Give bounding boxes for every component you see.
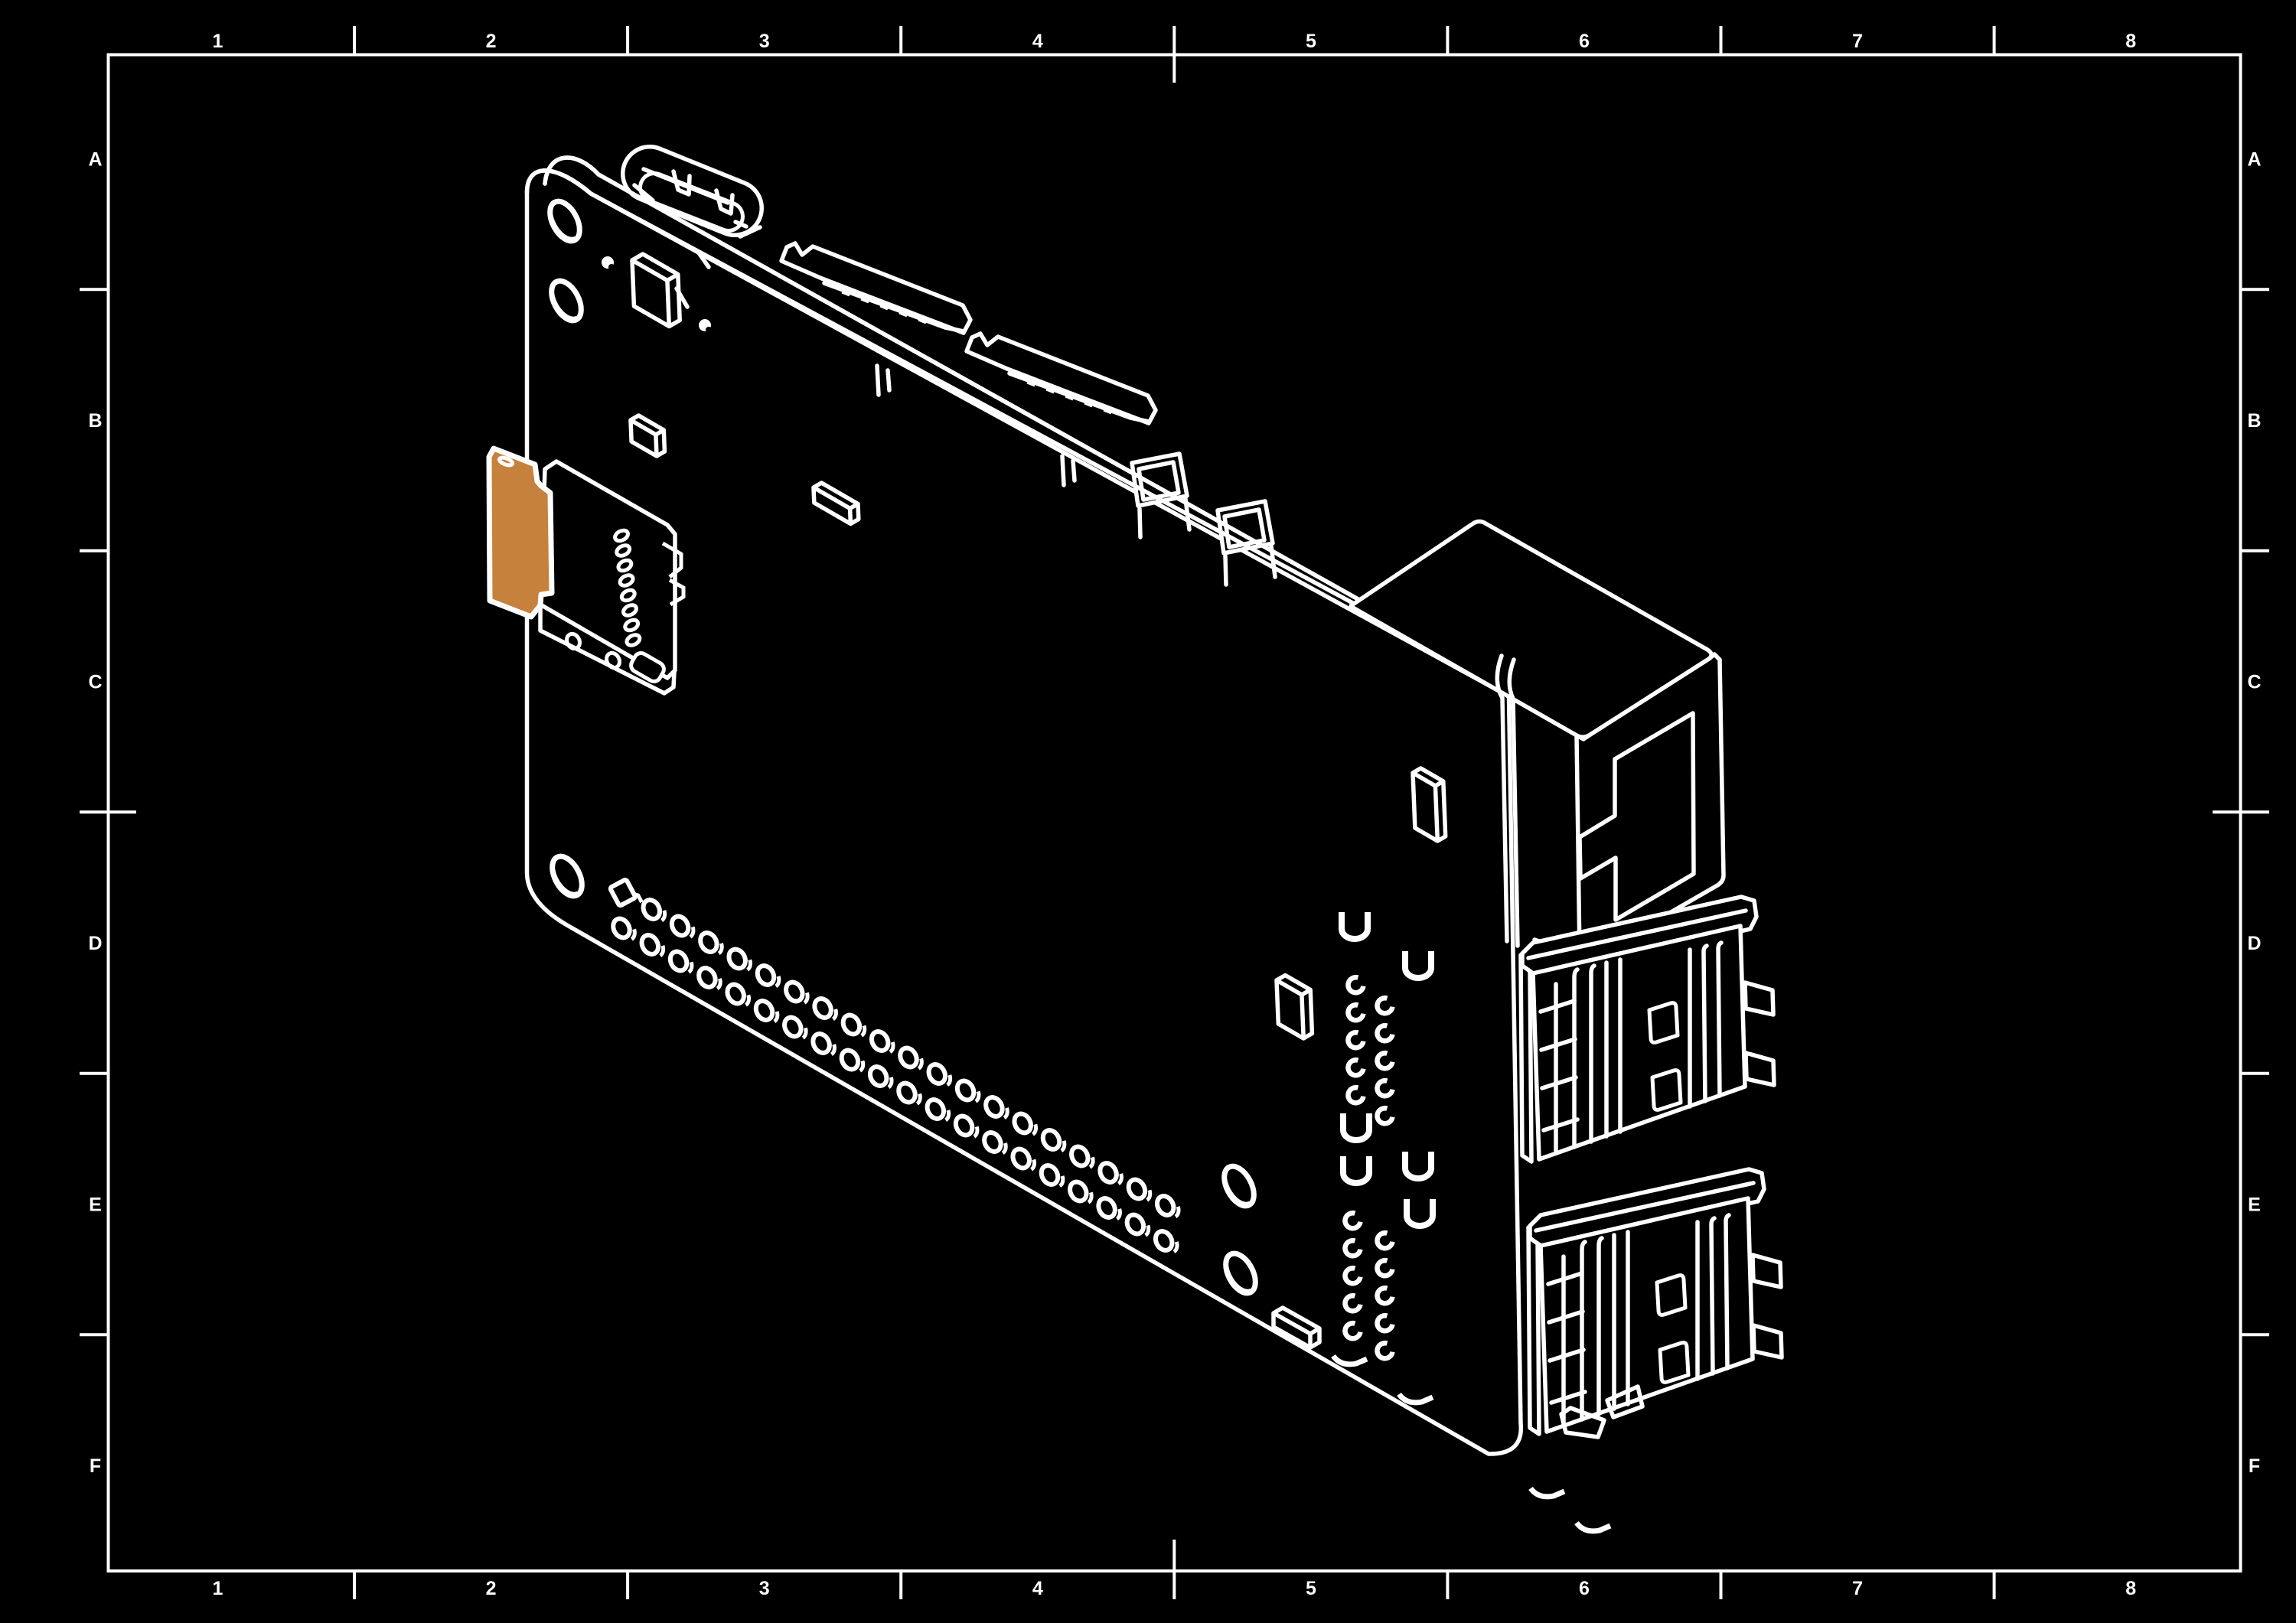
svg-text:E: E xyxy=(89,1194,102,1216)
svg-text:6: 6 xyxy=(1579,31,1590,52)
svg-text:D: D xyxy=(2247,933,2261,954)
svg-text:3: 3 xyxy=(759,1578,770,1599)
svg-text:7: 7 xyxy=(1852,1578,1863,1599)
svg-text:2: 2 xyxy=(486,31,497,52)
svg-text:1: 1 xyxy=(213,1578,223,1599)
svg-text:A: A xyxy=(2247,149,2261,171)
svg-text:A: A xyxy=(88,149,102,171)
svg-text:3: 3 xyxy=(759,31,770,52)
svg-text:4: 4 xyxy=(1032,31,1043,52)
svg-text:7: 7 xyxy=(1852,31,1863,52)
svg-text:5: 5 xyxy=(1306,1578,1316,1599)
svg-text:E: E xyxy=(2248,1194,2261,1216)
svg-text:4: 4 xyxy=(1032,1578,1043,1599)
svg-text:B: B xyxy=(2247,410,2261,432)
svg-text:6: 6 xyxy=(1579,1578,1590,1599)
svg-text:2: 2 xyxy=(486,1578,497,1599)
svg-text:8: 8 xyxy=(2125,1578,2136,1599)
svg-text:C: C xyxy=(2247,672,2261,693)
svg-text:F: F xyxy=(90,1455,101,1477)
svg-text:C: C xyxy=(88,672,102,693)
svg-text:F: F xyxy=(2249,1455,2260,1477)
svg-text:1: 1 xyxy=(213,31,223,52)
svg-text:D: D xyxy=(88,933,102,954)
svg-text:B: B xyxy=(88,410,102,432)
svg-text:5: 5 xyxy=(1306,31,1316,52)
svg-text:8: 8 xyxy=(2125,31,2136,52)
